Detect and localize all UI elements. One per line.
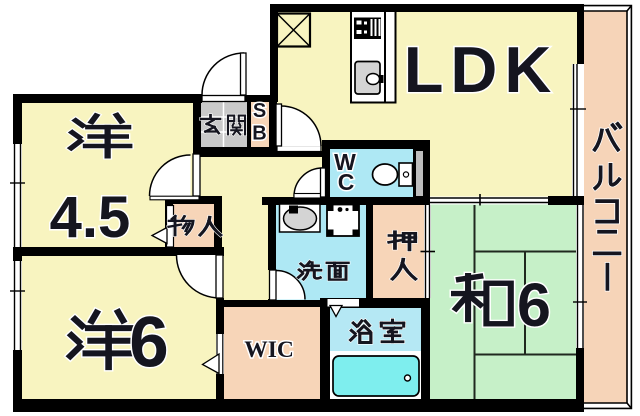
svg-text:B: B bbox=[252, 123, 266, 145]
svg-text:C: C bbox=[338, 169, 355, 195]
svg-text:S: S bbox=[253, 100, 266, 122]
svg-text:LDK: LDK bbox=[404, 33, 559, 106]
svg-text:6: 6 bbox=[517, 271, 551, 339]
svg-text:6: 6 bbox=[129, 304, 169, 383]
svg-text:4.5: 4.5 bbox=[50, 185, 131, 250]
svg-text:WIC: WIC bbox=[244, 337, 294, 363]
